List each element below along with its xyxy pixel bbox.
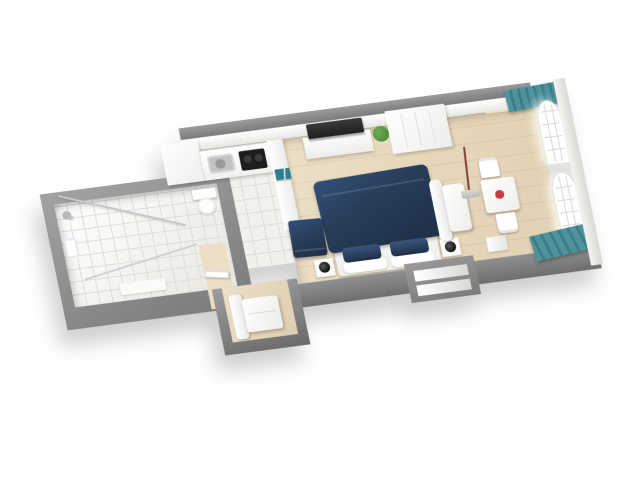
apartment-plan — [30, 78, 615, 391]
kitchen-sink — [207, 153, 236, 174]
floor-plan-render — [0, 0, 640, 480]
dining-chair-north — [478, 156, 501, 178]
navy-cube-chair — [288, 218, 328, 258]
armchair-seat — [241, 295, 283, 333]
dining-chair-south — [495, 212, 519, 234]
entrance-door — [205, 271, 229, 279]
cooktop — [238, 148, 268, 171]
kitchen-tall-cabinet — [160, 140, 206, 186]
teal-wall-art — [274, 168, 291, 181]
nook-small-shelf — [486, 235, 509, 252]
wardrobe — [384, 104, 452, 154]
